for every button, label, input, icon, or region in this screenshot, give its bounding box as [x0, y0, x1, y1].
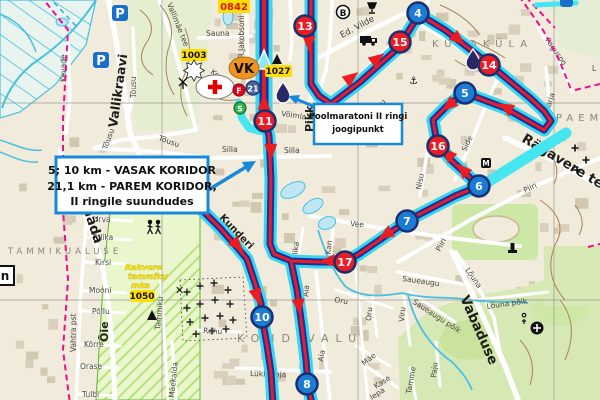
building: [322, 186, 335, 193]
building: [339, 209, 349, 215]
building: [251, 202, 262, 213]
building: [379, 186, 391, 192]
building: [421, 55, 431, 60]
km-marker-number: 13: [297, 20, 312, 33]
km-marker: 6: [469, 176, 490, 197]
building: [282, 213, 289, 220]
parking-icon: P: [112, 5, 128, 22]
km-marker-number: 4: [414, 7, 422, 20]
building: [439, 77, 451, 84]
map-canvas: VallikraaviKevadeVallimäe teeTõusuTõusuT…: [0, 0, 600, 400]
bus-label: B: [340, 9, 347, 19]
callout-line: II ringile suundudes: [70, 195, 194, 208]
building: [374, 285, 381, 296]
finish-badge: F: [233, 84, 245, 96]
building: [273, 45, 279, 52]
km-marker: 5: [455, 83, 476, 104]
street-label: Vee: [350, 219, 365, 229]
building: [239, 201, 250, 207]
street-label: Oru: [364, 306, 374, 321]
park-name-line: Rakvere: [125, 263, 162, 272]
street-label: Õie: [98, 321, 111, 342]
district-label: PAEMU: [556, 113, 600, 124]
museum-icon: M: [481, 158, 491, 168]
district-label: TAMMIKUALUSE: [7, 247, 122, 257]
code-label: 0842: [220, 2, 248, 13]
bus-stop-icon: B: [337, 6, 350, 20]
stadium-track: [473, 216, 519, 242]
code-0842: 0842: [218, 0, 250, 13]
km-marker-number: 14: [481, 59, 497, 72]
callout-box: [314, 104, 402, 144]
museum-label: M: [482, 159, 489, 168]
km-marker: 16: [428, 136, 449, 157]
km21-label: 21: [247, 85, 259, 94]
start-label: S: [237, 105, 243, 114]
parking-icon: P: [93, 52, 109, 69]
building: [41, 368, 48, 376]
km-marker: 7: [397, 211, 418, 232]
km-marker: 13: [295, 16, 316, 37]
km-marker-number: 7: [403, 215, 411, 228]
building: [419, 31, 425, 41]
callout-line: 21,1 km - PAREM KORIDOR,: [47, 180, 217, 193]
building: [548, 66, 559, 74]
street-label: Viru: [397, 306, 407, 322]
parking-label: P: [115, 7, 125, 22]
building: [215, 18, 221, 26]
vk-label: VK: [234, 62, 255, 77]
km-marker: 10: [252, 307, 273, 328]
street-label: Silla: [284, 146, 300, 155]
km-marker-number: 8: [303, 378, 311, 391]
km-marker: 11: [255, 111, 276, 132]
building: [360, 265, 367, 271]
finish-label: F: [236, 87, 241, 96]
building: [225, 376, 236, 385]
building: [215, 169, 224, 176]
building: [288, 125, 296, 133]
parking-icon: [560, 0, 573, 7]
building: [222, 363, 229, 368]
km-marker-number: 15: [392, 36, 407, 49]
building: [242, 345, 248, 353]
building: [396, 73, 402, 80]
street-label: Mooni: [89, 286, 112, 295]
building: [357, 8, 363, 15]
label-n-box: n: [0, 266, 14, 285]
building: [520, 63, 531, 72]
km-marker-number: 11: [257, 115, 272, 128]
km-marker-number: 16: [430, 140, 446, 153]
street-label: Kirsi: [95, 258, 111, 267]
callout-line: 5; 10 km - VASAK KORIDOR: [48, 164, 217, 177]
building: [521, 9, 531, 16]
building: [557, 224, 569, 232]
park-name-line: mka: [131, 281, 150, 290]
km-marker: 14: [479, 55, 500, 76]
park-name-line: tammiku: [128, 272, 168, 281]
building: [335, 238, 346, 248]
building: [26, 352, 38, 360]
anchor-monument-icon: ⚓: [409, 76, 418, 87]
building: [47, 376, 55, 383]
callout-line: Poolmaratoni II ringi: [309, 112, 408, 122]
km-marker: 15: [390, 32, 411, 53]
building: [17, 274, 23, 283]
street-label: Paju: [429, 362, 439, 379]
label-n: n: [1, 269, 10, 283]
km-marker: 8: [297, 374, 318, 395]
km-marker-number: 6: [475, 180, 483, 193]
km21-badge: 21: [246, 81, 260, 95]
code-1050: 1050: [129, 290, 155, 302]
street: [290, 0, 292, 60]
building: [535, 162, 541, 171]
callout-line: joogipunkt: [331, 125, 384, 135]
building: [19, 184, 27, 192]
km-marker: 4: [408, 3, 429, 24]
code-label: 1027: [265, 67, 290, 77]
building: [213, 115, 222, 120]
street-label: Orase: [80, 362, 102, 371]
street-label: Rahu: [203, 326, 223, 336]
parking-label: P: [96, 54, 106, 69]
race-route-map: VallikraaviKevadeVallimäe teeTõusuTõusuT…: [0, 0, 600, 400]
km-marker-number: 10: [254, 311, 270, 324]
km-marker: 17: [335, 252, 356, 273]
building: [270, 301, 277, 307]
code-label: 1050: [129, 292, 154, 302]
building: [42, 304, 48, 309]
vk-badge: VK: [229, 57, 259, 79]
building: [540, 223, 549, 232]
building: [70, 137, 80, 147]
building: [509, 25, 521, 35]
start-badge: S: [234, 102, 246, 114]
building: [48, 319, 58, 330]
building: [252, 193, 263, 199]
building: [235, 379, 245, 385]
building: [275, 124, 287, 133]
street-label: Tõusu: [129, 76, 138, 99]
km-marker-number: 5: [461, 87, 469, 100]
street-label: Sauna: [206, 29, 229, 38]
street-label: Põllu: [92, 307, 110, 316]
building: [16, 341, 24, 349]
building: [26, 358, 34, 368]
street-label: Silla: [222, 145, 238, 154]
km-marker-number: 17: [337, 256, 352, 269]
building: [577, 142, 586, 151]
street-label: Tulbi: [81, 390, 99, 399]
street-label: Vahtra pst: [69, 313, 78, 352]
quarry-x-icon: ✕: [175, 284, 184, 297]
building: [367, 266, 378, 273]
